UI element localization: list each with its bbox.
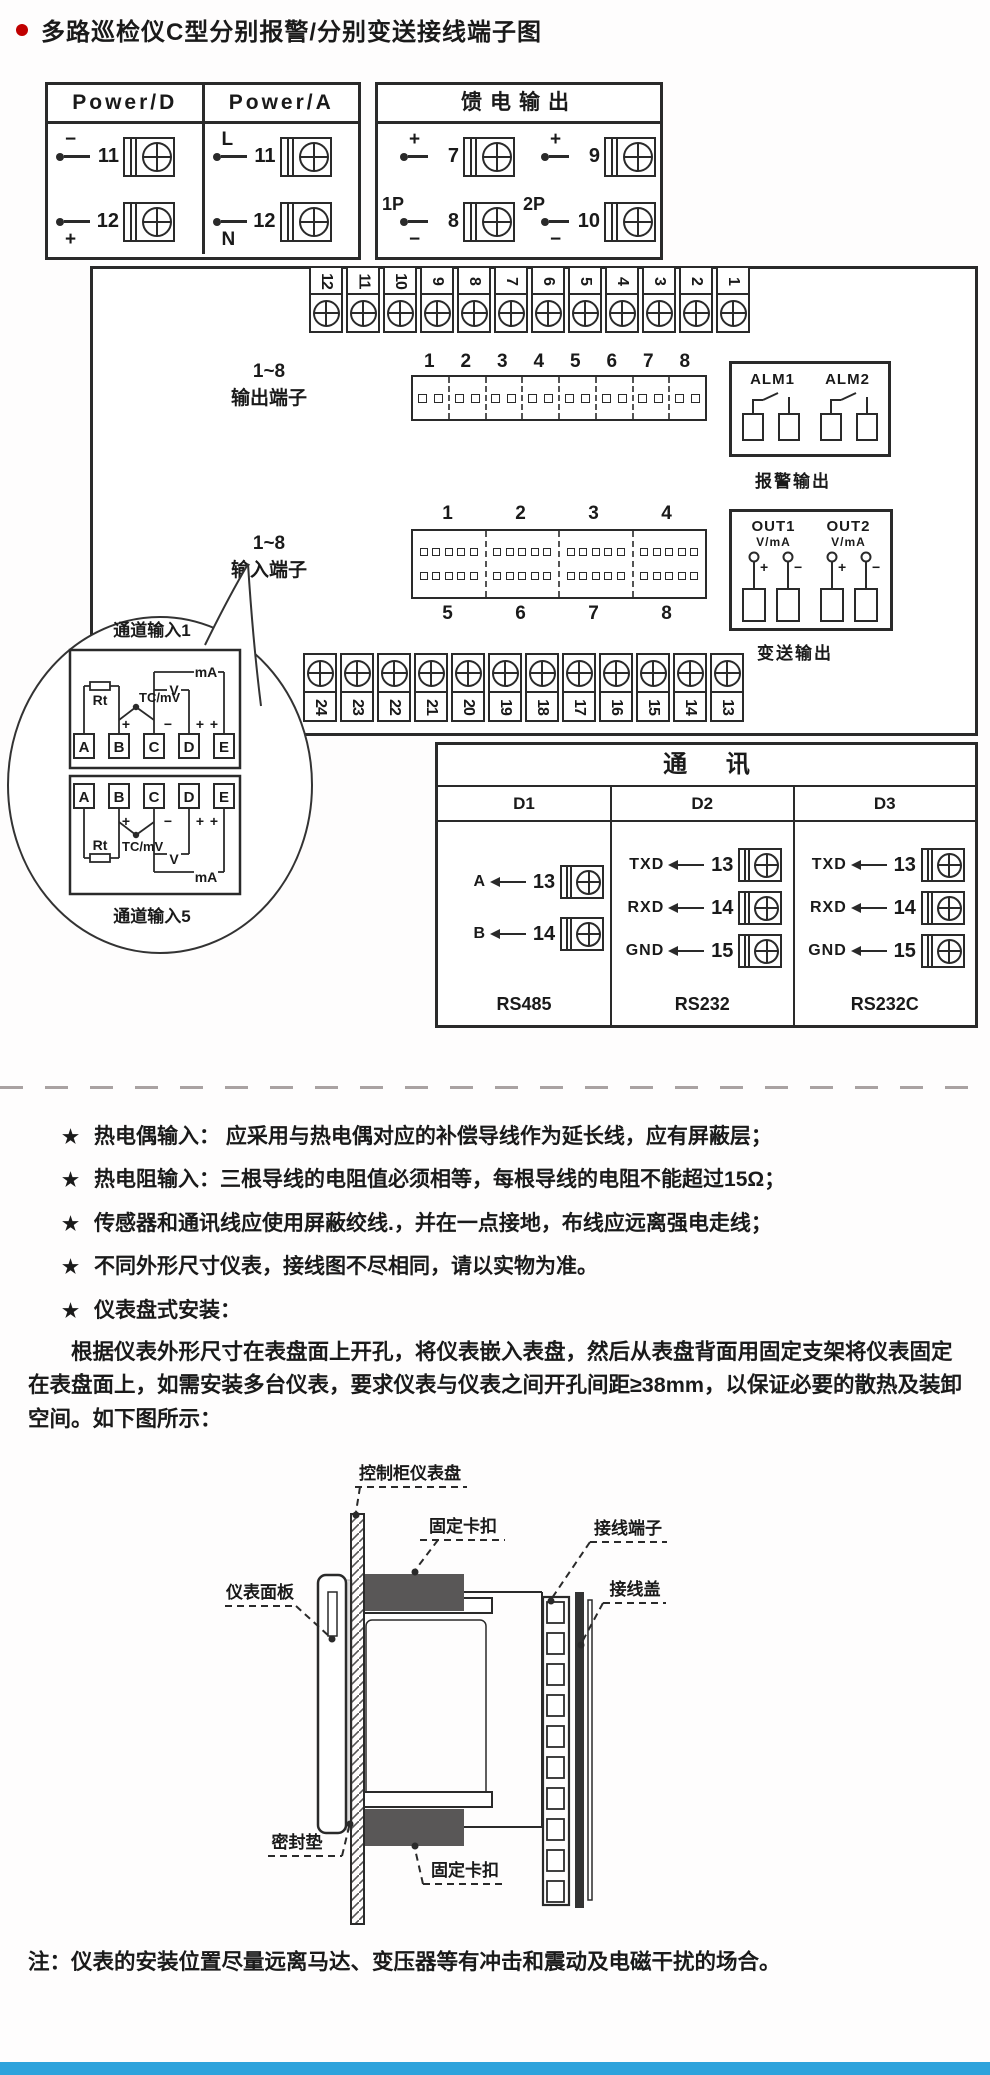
svg-text:+: +: [760, 559, 768, 575]
polarity-label: −: [65, 129, 76, 151]
terminal-row: + 12: [48, 191, 202, 253]
channel-input-balloon: 通道输入1 通道输入5 Rt: [0, 530, 340, 970]
terminal-number: 18: [533, 699, 551, 715]
output-number: 8: [667, 351, 704, 373]
comm-row: B 14: [444, 917, 604, 951]
svg-text:B: B: [114, 789, 125, 806]
terminal-row: + 7: [400, 128, 519, 186]
bottom-blue-bar: [0, 2062, 990, 2075]
polarity-label: +: [409, 129, 420, 151]
wire-line: −: [549, 220, 569, 223]
svg-text:−: −: [164, 716, 172, 732]
terminal-number: 9: [428, 277, 446, 285]
svg-text:+: +: [122, 716, 130, 732]
svg-text:Rt: Rt: [93, 837, 108, 853]
signal-label: RXD: [622, 899, 664, 917]
polarity-label: L: [222, 129, 234, 151]
terminal-number: 2: [687, 277, 705, 285]
polarity-label: +: [550, 129, 561, 151]
channel5-label: 通道输入5: [113, 906, 190, 926]
clip-top-label: 固定卡扣: [429, 1516, 497, 1536]
terminal-cell: 14: [673, 653, 707, 722]
wire-line: +: [64, 220, 90, 223]
terminal-number: 19: [496, 699, 514, 715]
input-number: 8: [630, 603, 703, 625]
terminal-cell: 6: [531, 266, 565, 333]
svg-text:+: +: [196, 813, 204, 829]
output-number: 1: [411, 351, 448, 373]
note-item: ★ 不同外形尺寸仪表，接线图不尽相同，请以实物为准。: [62, 1252, 974, 1282]
power-d-column: − 11 + 12: [48, 124, 202, 254]
input-number: 6: [484, 603, 557, 625]
pin-icon: [654, 394, 663, 403]
screw-terminal-icon: [123, 137, 175, 177]
output-connector-cell: [595, 377, 632, 419]
power-d-header: Power/D: [48, 85, 202, 121]
terminal-number: 14: [709, 897, 735, 920]
terminal-number: 9: [574, 145, 600, 168]
star-icon: ★: [62, 1122, 79, 1152]
terminal-number: 3: [650, 277, 668, 285]
input-number: 7: [557, 603, 630, 625]
out2-unit: V/mA: [811, 535, 886, 549]
screw-terminal-icon: [604, 137, 656, 177]
screw-terminal-icon: [921, 891, 965, 925]
notes-list: ★ 热电偶输入： 应采用与热电偶对应的补偿导线作为延长线，应有屏蔽层； ★ 热电…: [62, 1122, 974, 1339]
left-arrow-icon: [668, 903, 704, 913]
svg-text:Rt: Rt: [93, 692, 108, 708]
terminal-number: 20: [459, 699, 477, 715]
output-number: 6: [594, 351, 631, 373]
terminal-cell: 5: [568, 266, 602, 333]
terminal-row: + 9: [541, 128, 660, 186]
terminal-cell: 9: [420, 266, 454, 333]
input-connector: [411, 529, 707, 599]
terminal-cell: 19: [488, 653, 522, 722]
svg-text:D: D: [184, 739, 195, 756]
wire-line: +: [408, 155, 428, 158]
note-text: 不同外形尺寸仪表，接线图不尽相同，请以实物为准。: [94, 1252, 598, 1282]
terminal-number: 22: [385, 699, 403, 715]
screw-terminal-icon: [280, 137, 332, 177]
terminal-number: 11: [95, 145, 119, 168]
left-arrow-icon: [851, 903, 887, 913]
signal-label: GND: [622, 942, 664, 960]
svg-text:E: E: [219, 789, 229, 806]
terminal-cell: 15: [636, 653, 670, 722]
wire-dot-icon: [541, 218, 549, 226]
channel-input-1-diagram: Rt TC/mV V mA + − + + A B C D E: [70, 650, 240, 768]
comm-standard-label: RS232C: [795, 994, 976, 1025]
input-number: 5: [411, 603, 484, 625]
output-connector-cell: [413, 377, 448, 419]
alm1-label: ALM1: [735, 371, 810, 388]
screw-terminal-icon: [463, 137, 515, 177]
svg-text:+: +: [122, 813, 130, 829]
bottom-note: 注：仪表的安装位置尽量远离马达、变压器等有冲击和震动及电磁干扰的场合。: [28, 1945, 968, 1976]
terminal-number: 23: [348, 699, 366, 715]
star-icon: ★: [62, 1209, 79, 1239]
terminal-row: N 12: [205, 191, 359, 253]
screw-terminal-icon: [921, 848, 965, 882]
terminal-cell: 2: [679, 266, 713, 333]
out2-label: OUT2: [811, 518, 886, 535]
wire-dot-icon: [56, 218, 64, 226]
wire-dot-icon: [541, 153, 549, 161]
wire-dot-icon: [56, 153, 64, 161]
output-connector-cell: [632, 377, 669, 419]
left-arrow-icon: [490, 877, 526, 887]
left-arrow-icon: [668, 860, 704, 870]
signal-label: TXD: [805, 856, 847, 874]
screw-terminal-icon: [604, 202, 656, 242]
pin-icon: [618, 394, 627, 403]
polarity-label: N: [222, 229, 236, 251]
left-arrow-icon: [851, 860, 887, 870]
dashed-divider: [0, 1086, 990, 1089]
communication-title: 通 讯: [438, 745, 975, 787]
terminal-number: 13: [531, 871, 557, 894]
power-a-column: L 11 N 12: [202, 124, 359, 254]
comm-col-d3: D3 TXD 13 RXD 14: [793, 787, 976, 1025]
input-numbers-top: 1234: [411, 503, 703, 525]
screw-terminal-icon: [342, 655, 372, 691]
pin-icon: [507, 394, 516, 403]
comm-standard-label: RS485: [438, 994, 610, 1025]
comm-row: RXD 14: [622, 891, 782, 925]
svg-text:−: −: [794, 559, 802, 575]
comm-row: TXD 13: [622, 848, 782, 882]
cover-label: 接线盖: [610, 1579, 661, 1599]
screw-terminal-icon: [638, 655, 668, 691]
output-connector-cell: [521, 377, 558, 419]
comm-standard-label: RS232: [612, 994, 793, 1025]
svg-text:C: C: [149, 739, 160, 756]
signal-label: A: [444, 873, 486, 891]
svg-text:C: C: [149, 789, 160, 806]
terminal-number: 17: [570, 699, 588, 715]
input-connector-cell: [413, 531, 485, 597]
wire-dot-icon: [400, 218, 408, 226]
comm-row: GND 15: [622, 934, 782, 968]
pin-icon: [675, 394, 684, 403]
terminal-number: 8: [433, 210, 459, 233]
terminal-cell: 10: [383, 266, 417, 333]
alarm-output-caption: 报警输出: [755, 467, 831, 492]
output-number: 4: [521, 351, 558, 373]
power-box: Power/D Power/A − 11 + 12: [45, 82, 361, 260]
terminal-number: 4: [613, 277, 631, 285]
svg-text:V: V: [169, 851, 179, 867]
pin-icon: [455, 394, 464, 403]
svg-text:B: B: [114, 739, 125, 756]
wire-line: −: [408, 220, 428, 223]
screw-terminal-icon: [560, 865, 604, 899]
terminal-number: 14: [681, 699, 699, 715]
screw-terminal-icon: [738, 848, 782, 882]
screw-terminal-icon: [560, 917, 604, 951]
terminal-cell: 11: [346, 266, 380, 333]
alm2-label: ALM2: [810, 371, 885, 388]
wire-dot-icon: [400, 153, 408, 161]
clip-bottom-label: 固定卡扣: [431, 1860, 499, 1880]
star-icon: ★: [62, 1252, 79, 1282]
group-name: 2P: [523, 194, 545, 215]
page-title: 多路巡检仪C型分别报警/分别变送接线端子图: [41, 12, 542, 47]
feed-group-2p: 2P + 9 − 10: [519, 124, 660, 254]
terminal-number: 6: [539, 277, 557, 285]
bottom-clip-shape: [364, 1809, 464, 1846]
note-text: 传感器和通讯线应使用屏蔽绞线.，并在一点接地，布线应远离强电走线；: [94, 1209, 772, 1239]
terminal-number: 13: [709, 854, 735, 877]
feed-output-box: 馈电输出 1P + 7 − 8: [375, 82, 663, 260]
screw-terminal-icon: [496, 295, 526, 331]
screw-terminal-icon: [570, 295, 600, 331]
terminal-cell: 23: [340, 653, 374, 722]
terminal-cell: 21: [414, 653, 448, 722]
signal-label: GND: [805, 942, 847, 960]
screw-terminal-icon: [348, 295, 378, 331]
terminal-cell: 20: [451, 653, 485, 722]
terminal-number: 10: [574, 210, 600, 233]
pin-icon: [434, 394, 443, 403]
terminal-number: 13: [718, 699, 736, 715]
svg-text:E: E: [219, 739, 229, 756]
svg-text:V: V: [169, 682, 179, 698]
installation-diagram: 控制柜仪表盘 固定卡扣 接线端子 接线盖 仪表面板 密封垫 固定卡扣: [170, 1452, 730, 1940]
comm-row: GND 15: [805, 934, 965, 968]
input-number: 2: [484, 503, 557, 525]
svg-text:mA: mA: [195, 664, 218, 680]
alarm-output-box: ALM1 ALM2: [729, 361, 891, 457]
output-connector-cell: [485, 377, 522, 419]
note-item: ★ 传感器和通讯线应使用屏蔽绞线.，并在一点接地，布线应远离强电走线；: [62, 1209, 974, 1239]
terminal-number: 15: [644, 699, 662, 715]
output-connector-cell: [558, 377, 595, 419]
left-arrow-icon: [851, 946, 887, 956]
polarity-label: +: [65, 229, 76, 251]
input-connector-cell: [558, 531, 632, 597]
svg-text:−: −: [872, 559, 880, 575]
pin-icon: [581, 394, 590, 403]
screw-terminal-icon: [644, 295, 674, 331]
terminal-number: 13: [892, 854, 918, 877]
note-item: ★ 热电偶输入： 应采用与热电偶对应的补偿导线作为延长线，应有屏蔽层；: [62, 1122, 974, 1152]
output-numbers: 12345678: [411, 351, 703, 373]
terminal-number: 12: [95, 210, 119, 233]
terminal-cell: 3: [642, 266, 676, 333]
terminal-row: − 11: [48, 126, 202, 188]
relay-contacts-drawing: [735, 388, 885, 444]
comm-col-d1: D1 A 13 B 14: [438, 787, 610, 1025]
page-title-row: 多路巡检仪C型分别报警/分别变送接线端子图: [16, 12, 542, 47]
comm-row: RXD 14: [805, 891, 965, 925]
screw-terminal-icon: [738, 934, 782, 968]
transmit-output-caption: 变送输出: [757, 639, 833, 664]
terminal-number: 10: [391, 273, 409, 289]
installation-paragraph: 根据仪表外形尺寸在表盘面上开孔，将仪表嵌入表盘，然后从表盘背面用固定支架将仪表固…: [28, 1336, 964, 1436]
screw-terminal-icon: [311, 295, 341, 331]
output-connector-cell: [448, 377, 485, 419]
svg-text:+: +: [210, 716, 218, 732]
input-numbers-bottom: 5678: [411, 603, 703, 625]
left-arrow-icon: [490, 929, 526, 939]
star-icon: ★: [62, 1165, 79, 1195]
svg-text:+: +: [210, 813, 218, 829]
terminal-number: 5: [576, 277, 594, 285]
screw-terminal-icon: [280, 202, 332, 242]
screw-terminal-icon: [123, 202, 175, 242]
front-panel-label: 仪表面板: [225, 1582, 295, 1602]
note-item: ★ 仪表盘式安装：: [62, 1296, 974, 1326]
terminal-number: 7: [502, 277, 520, 285]
cabinet-panel-shape: [351, 1514, 364, 1924]
top-clip-shape: [364, 1574, 464, 1611]
wire-line: L: [221, 155, 247, 158]
page: 多路巡检仪C型分别报警/分别变送接线端子图 Power/D Power/A − …: [0, 0, 990, 2075]
screw-terminal-icon: [675, 655, 705, 691]
terminal-label: 接线端子: [594, 1518, 662, 1538]
channel-input-5-diagram: Rt TC/mV V mA + − + + A B C D E: [70, 776, 240, 894]
terminal-cell: 16: [599, 653, 633, 722]
comm-row: TXD 13: [805, 848, 965, 882]
screw-terminal-icon: [416, 655, 446, 691]
svg-text:−: −: [164, 813, 172, 829]
note-text: 仪表盘式安装：: [94, 1296, 241, 1326]
terminal-row: L 11: [205, 126, 359, 188]
communication-table: 通 讯 D1 A 13 B: [435, 742, 978, 1028]
output-number: 5: [557, 351, 594, 373]
signal-label: RXD: [805, 899, 847, 917]
gasket-label: 密封垫: [272, 1832, 323, 1852]
screw-terminal-icon: [453, 655, 483, 691]
output-connector-cell: [668, 377, 705, 419]
screw-terminal-icon: [533, 295, 563, 331]
screw-terminal-icon: [681, 295, 711, 331]
signal-label: TXD: [622, 856, 664, 874]
left-arrow-icon: [668, 946, 704, 956]
output-number: 3: [484, 351, 521, 373]
terminal-number: 15: [892, 940, 918, 963]
terminal-number: 16: [607, 699, 625, 715]
terminal-cell: 18: [525, 653, 559, 722]
screw-terminal-icon: [712, 655, 742, 691]
svg-text:D: D: [184, 789, 195, 806]
terminal-cell: 22: [377, 653, 411, 722]
screw-terminal-icon: [490, 655, 520, 691]
top-terminal-strip: 12 11 10 9 8: [309, 266, 750, 333]
terminal-number: 11: [252, 145, 276, 168]
wire-dot-icon: [213, 153, 221, 161]
pin-icon: [544, 394, 553, 403]
pin-icon: [418, 394, 427, 403]
output-connector: [411, 375, 707, 421]
power-a-header: Power/A: [202, 85, 359, 121]
terminal-number: 12: [317, 273, 335, 289]
svg-text:+: +: [196, 716, 204, 732]
screw-terminal-icon: [463, 202, 515, 242]
wire-dot-icon: [213, 218, 221, 226]
svg-text:A: A: [79, 739, 90, 756]
screw-terminal-icon: [564, 655, 594, 691]
input-connector-cell: [485, 531, 559, 597]
screw-terminal-icon: [385, 295, 415, 331]
group-name: 1P: [382, 194, 404, 215]
panel-label: 控制柜仪表盘: [359, 1463, 461, 1483]
transmit-output-box: OUT1 OUT2 V/mA V/mA + − + −: [729, 509, 893, 631]
screw-terminal-icon: [738, 891, 782, 925]
channel1-label: 通道输入1: [113, 620, 190, 640]
terminal-number: 1: [724, 277, 742, 285]
output-number: 2: [448, 351, 485, 373]
terminal-cell: 8: [457, 266, 491, 333]
signal-label: B: [444, 925, 486, 943]
screw-terminal-icon: [422, 295, 452, 331]
pin-icon: [491, 394, 500, 403]
terminal-number: 11: [354, 273, 372, 288]
note-text: 热电阻输入：三根导线的电阻值必须相等，每根导线的电阻不能超过15Ω；: [94, 1165, 785, 1195]
screw-terminal-icon: [921, 934, 965, 968]
out1-label: OUT1: [736, 518, 811, 535]
terminal-number: 15: [709, 940, 735, 963]
screw-terminal-icon: [601, 655, 631, 691]
polarity-label: −: [409, 229, 420, 251]
input-number: 4: [630, 503, 703, 525]
output-terminals-label: 1~8 输出端子: [207, 359, 331, 412]
terminal-block-shape: [543, 1597, 569, 1905]
wire-line: −: [64, 155, 90, 158]
terminal-number: 21: [422, 699, 440, 715]
red-bullet-icon: [16, 24, 28, 36]
terminal-cell: 7: [494, 266, 528, 333]
comm-row: A 13: [444, 865, 604, 899]
terminal-number: 12: [252, 210, 276, 233]
pin-icon: [471, 394, 480, 403]
input-connector-cell: [632, 531, 706, 597]
polarity-label: −: [550, 229, 561, 251]
svg-text:TC/mV: TC/mV: [122, 839, 164, 854]
bottom-terminal-strip: 24 23 22 21 20: [303, 653, 744, 722]
terminal-number: 14: [531, 923, 557, 946]
pin-icon: [528, 394, 537, 403]
terminal-number: 14: [892, 897, 918, 920]
terminal-cell: 17: [562, 653, 596, 722]
screw-terminal-icon: [527, 655, 557, 691]
input-number: 1: [411, 503, 484, 525]
pin-icon: [565, 394, 574, 403]
pin-icon: [602, 394, 611, 403]
svg-text:A: A: [79, 789, 90, 806]
note-item: ★ 热电阻输入：三根导线的电阻值必须相等，每根导线的电阻不能超过15Ω；: [62, 1165, 974, 1195]
pin-icon: [691, 394, 700, 403]
feed-output-title: 馈电输出: [378, 85, 660, 124]
transmit-terminals-drawing: + − + −: [736, 549, 886, 623]
note-text: 热电偶输入： 应采用与热电偶对应的补偿导线作为延长线，应有屏蔽层；: [94, 1122, 772, 1152]
out1-unit: V/mA: [736, 535, 811, 549]
terminal-number: 7: [433, 145, 459, 168]
terminal-number: 8: [465, 277, 483, 285]
terminal-cell: 4: [605, 266, 639, 333]
wire-line: +: [549, 155, 569, 158]
svg-text:+: +: [838, 559, 846, 575]
screw-terminal-icon: [607, 295, 637, 331]
svg-text:mA: mA: [195, 869, 218, 885]
feed-group-1p: 1P + 7 − 8: [378, 124, 519, 254]
screw-terminal-icon: [459, 295, 489, 331]
star-icon: ★: [62, 1296, 79, 1326]
screw-terminal-icon: [718, 295, 748, 331]
wire-line: N: [221, 220, 247, 223]
